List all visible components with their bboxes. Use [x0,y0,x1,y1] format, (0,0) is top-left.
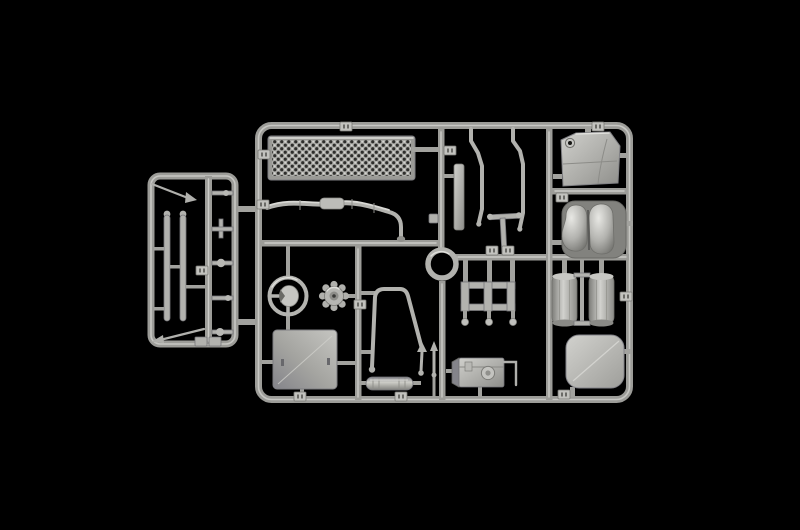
black-background [0,0,800,530]
sprue-photo [0,0,800,530]
small-bracket-part [429,214,438,223]
gate-stub [154,307,164,311]
gate-tab [196,266,208,275]
gate-stub [186,285,205,289]
twin-tank-shells-part [552,201,633,258]
gate-block [195,337,207,346]
gate-stub [154,247,164,251]
gate-block [209,337,221,346]
grille-plate-part [268,136,439,180]
gate-stub [170,265,180,269]
wiper-strip-part-left [164,211,171,321]
wiper-strip-part-right [180,211,187,321]
